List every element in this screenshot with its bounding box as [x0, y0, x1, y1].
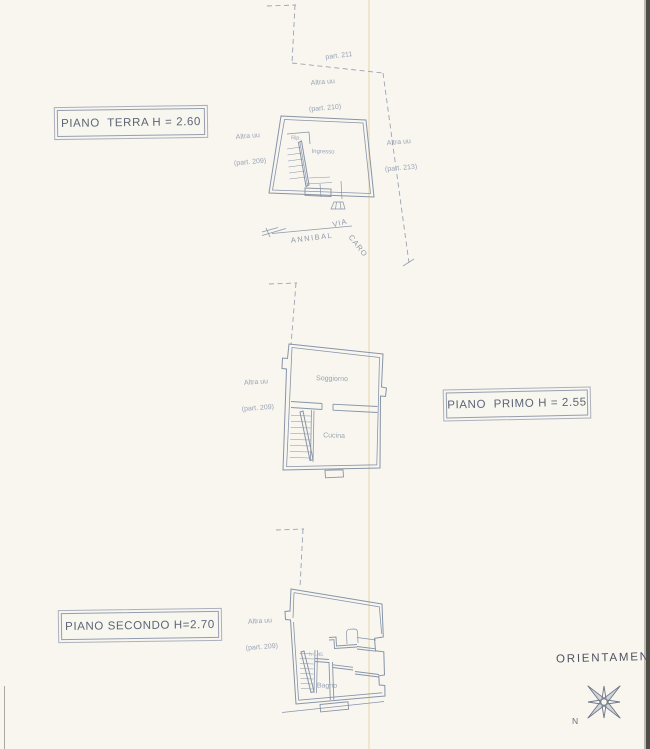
neighbor-label-209-first-l1: Altra uu	[240, 377, 273, 388]
floor-title-ground-text: PIANO TERRA H = 2.60	[61, 116, 201, 130]
neighbor-label-209-ground-l2: (part. 209)	[234, 157, 267, 169]
neighbor-label-213-l1: Altra uu	[382, 137, 415, 149]
compass-rose-icon	[588, 686, 621, 719]
room-label-rip: Rip.	[291, 136, 301, 143]
neighbor-label-209-first-l2: (part. 209)	[242, 404, 275, 415]
neighbor-label-209-second-l1: Altra uu	[244, 616, 277, 627]
neighbor-label-213: Altra uu (part. 213)	[381, 120, 419, 193]
floor-title-first: PIANO PRIMO H = 2.55	[446, 390, 589, 419]
neighbor-label-210: Altra uu (part. 210)	[305, 60, 343, 133]
north-label: N	[572, 716, 578, 726]
floor-title-second: PIANO SECONDO H=2.70	[61, 611, 219, 640]
room-label-bagno: Bagno	[317, 682, 337, 691]
neighbor-label-209-second-l2: (part. 209)	[246, 643, 279, 654]
room-label-cucina: Cucina	[323, 432, 345, 442]
neighbor-label-213-l2: (part. 213)	[385, 163, 418, 175]
neighbor-label-210-l2: (part. 210)	[309, 103, 342, 115]
floor-title-first-text: PIANO PRIMO H = 2.55	[447, 397, 587, 412]
stair-height-note: h 1.45	[309, 652, 323, 658]
floor-title-second-text: PIANO SECONDO H=2.70	[65, 618, 215, 632]
neighbor-label-209-ground: Altra uu (part. 209)	[230, 114, 268, 187]
neighbor-label-209-ground-l1: Altra uu	[231, 131, 264, 143]
neighbor-label-209-first: Altra uu (part. 209)	[238, 360, 275, 432]
room-label-soggiorno: Soggiorno	[316, 375, 348, 385]
neighbor-label-210-l1: Altra uu	[306, 77, 339, 89]
second-floor-plan	[282, 589, 385, 713]
orientation-title: ORIENTAMENTO	[556, 651, 650, 666]
scanned-floorplan-page: PIANO TERRA H = 2.60 PIANO PRIMO H = 2.5…	[0, 0, 650, 749]
floor-title-ground: PIANO TERRA H = 2.60	[57, 108, 205, 137]
first-floor-plan	[282, 344, 387, 478]
room-label-ingresso: Ingresso	[311, 149, 334, 157]
neighbor-label-209-second: Altra uu (part. 209)	[242, 599, 279, 671]
